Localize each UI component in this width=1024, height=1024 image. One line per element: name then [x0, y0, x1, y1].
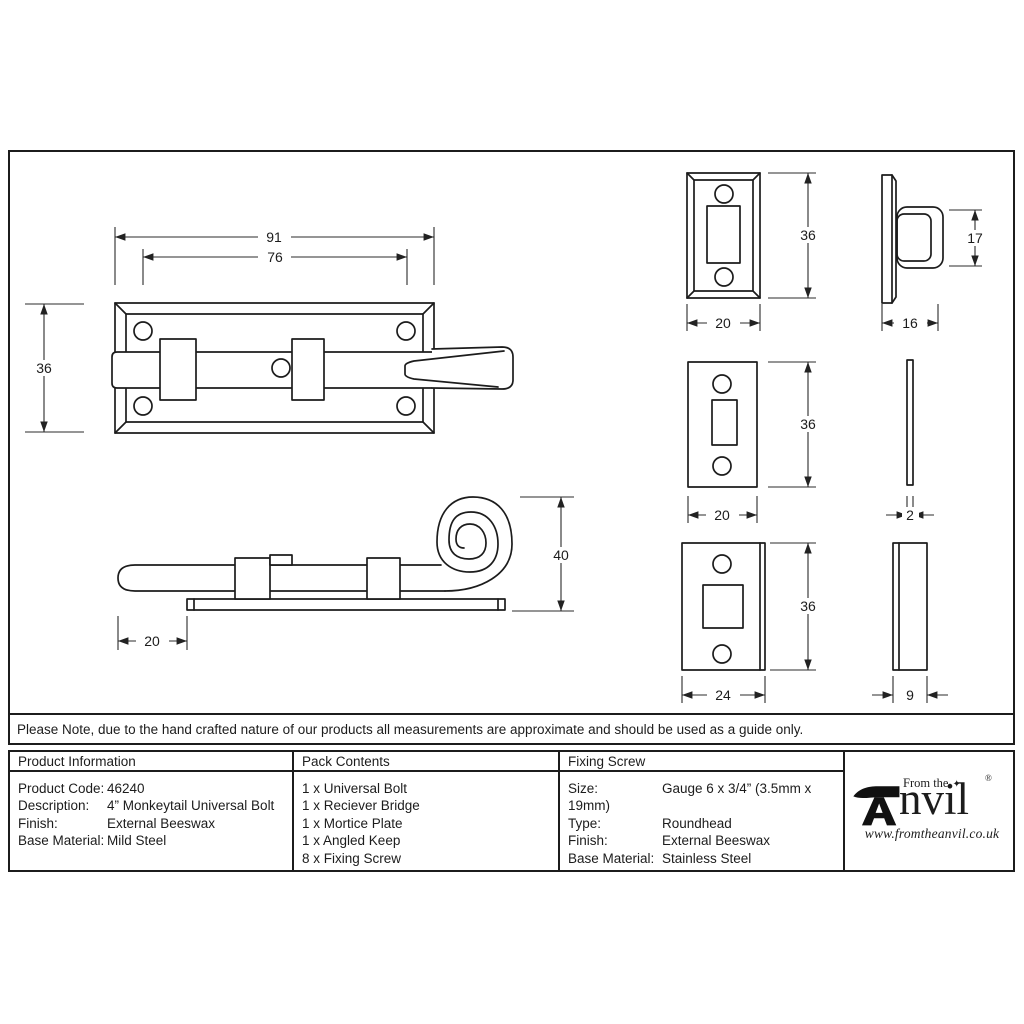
table-row: Type:Roundhead: [568, 815, 838, 832]
product-information-header: Product Information: [18, 754, 136, 769]
table-row: Base Material:Mild Steel: [18, 832, 286, 849]
table-row: Product Code:46240: [18, 780, 286, 797]
list-item: 1 x Universal Bolt: [302, 780, 550, 797]
pack-contents-header: Pack Contents: [302, 754, 390, 769]
list-item: 1 x Mortice Plate: [302, 815, 550, 832]
anvil-logo: From the✦ ® nvil www.fromtheanvil.co.uk: [851, 776, 1013, 848]
product-information-rows: Product Code:46240 Description:4” Monkey…: [18, 780, 286, 850]
brand-logo-cell: From the✦ ® nvil www.fromtheanvil.co.uk: [845, 752, 1015, 870]
note-strip: Please Note, due to the hand crafted nat…: [8, 713, 1015, 745]
pack-contents-rows: 1 x Universal Bolt 1 x Reciever Bridge 1…: [302, 780, 550, 867]
table-row: Finish:External Beeswax: [568, 832, 838, 849]
drawing-frame: [8, 150, 1015, 715]
list-item: 1 x Angled Keep: [302, 832, 550, 849]
anvil-icon: [851, 782, 901, 828]
registered-mark: ®: [985, 773, 992, 783]
list-item: 8 x Fixing Screw: [302, 850, 550, 867]
fixing-screw-header: Fixing Screw: [568, 754, 645, 769]
table-row: Description:4” Monkeytail Universal Bolt: [18, 797, 286, 814]
logo-url: www.fromtheanvil.co.uk: [847, 826, 1017, 842]
spec-table: Product Information Pack Contents Fixing…: [8, 750, 1015, 872]
table-row: Base Material:Stainless Steel: [568, 850, 838, 867]
header-divider: [10, 770, 843, 772]
list-item: 1 x Reciever Bridge: [302, 797, 550, 814]
measurement-note: Please Note, due to the hand crafted nat…: [10, 722, 803, 737]
spec-sheet: 91 76 36 20 40: [0, 0, 1024, 1024]
table-row: Finish:External Beeswax: [18, 815, 286, 832]
logo-wordmark: nvil: [899, 777, 969, 822]
table-row: Size:Gauge 6 x 3/4” (3.5mm x 19mm): [568, 780, 838, 815]
fixing-screw-rows: Size:Gauge 6 x 3/4” (3.5mm x 19mm) Type:…: [568, 780, 838, 867]
